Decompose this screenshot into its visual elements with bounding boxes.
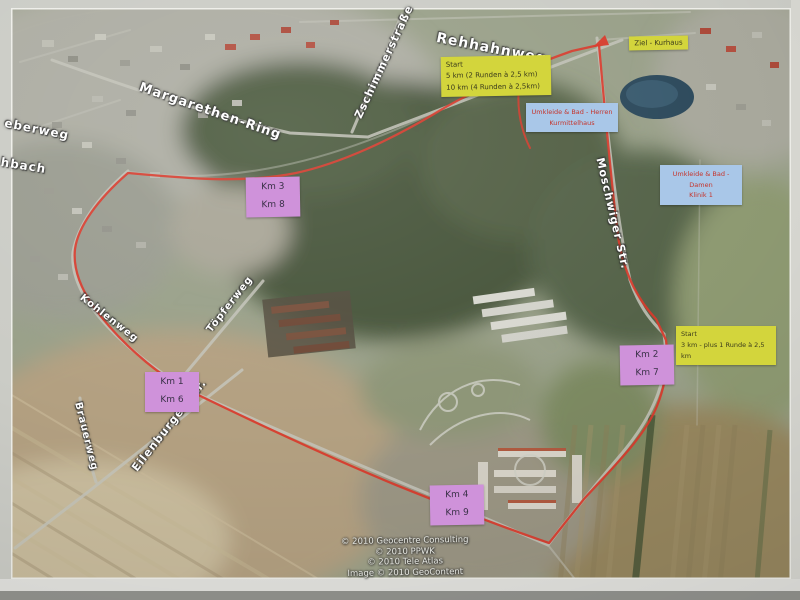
changing-women-line1: Umkleide & Bad - Damen: [661, 169, 741, 190]
km-marker-1-6: Km 1 Km 6: [145, 372, 199, 412]
course-map-photo: Rehhahnweg Margarethen-Ring eberweg hbac…: [0, 0, 800, 600]
km-marker-3-8: Km 3 Km 8: [246, 177, 301, 218]
km-marker-line: Km 8: [246, 196, 300, 214]
changing-men-line1: Umkleide & Bad - Herren: [527, 107, 617, 118]
km-marker-line: Km 6: [145, 392, 199, 410]
changing-rooms-men-label: Umkleide & Bad - Herren Kurmittelhaus: [526, 103, 618, 132]
km-marker-4-9: Km 4 Km 9: [430, 485, 485, 526]
barracks-buildings: [262, 291, 356, 358]
changing-men-line2: Kurmittelhaus: [527, 118, 617, 129]
pond: [620, 75, 694, 119]
km-marker-line: Km 1: [145, 374, 199, 392]
start-3km-title: Start: [681, 329, 771, 340]
km-marker-line: Km 7: [620, 364, 674, 382]
start-3km-label: Start 3 km - plus 1 Runde à 2,5 km: [676, 326, 776, 365]
finish-label: Ziel - Kurhaus: [629, 35, 688, 50]
start-3km-line: 3 km - plus 1 Runde à 2,5 km: [681, 340, 771, 362]
copyright-attribution: © 2010 Geocentre Consulting © 2010 PPWK …: [295, 534, 516, 580]
changing-women-line2: Klinik 1: [661, 190, 741, 201]
km-marker-line: Km 2: [620, 347, 674, 365]
km-marker-line: Km 4: [430, 487, 484, 505]
start-finish-label: Start 5 km (2 Runden à 2,5 km) 10 km (4 …: [441, 55, 552, 97]
map-area: [0, 0, 800, 600]
km-marker-line: Km 9: [430, 504, 484, 522]
aerial-basemap: [0, 0, 800, 600]
km-marker-line: Km 3: [246, 179, 300, 197]
km-marker-2-7: Km 2 Km 7: [620, 345, 675, 386]
start-line-10km: 10 km (4 Runden à 2,5km): [446, 81, 546, 94]
changing-rooms-women-label: Umkleide & Bad - Damen Klinik 1: [660, 165, 742, 205]
